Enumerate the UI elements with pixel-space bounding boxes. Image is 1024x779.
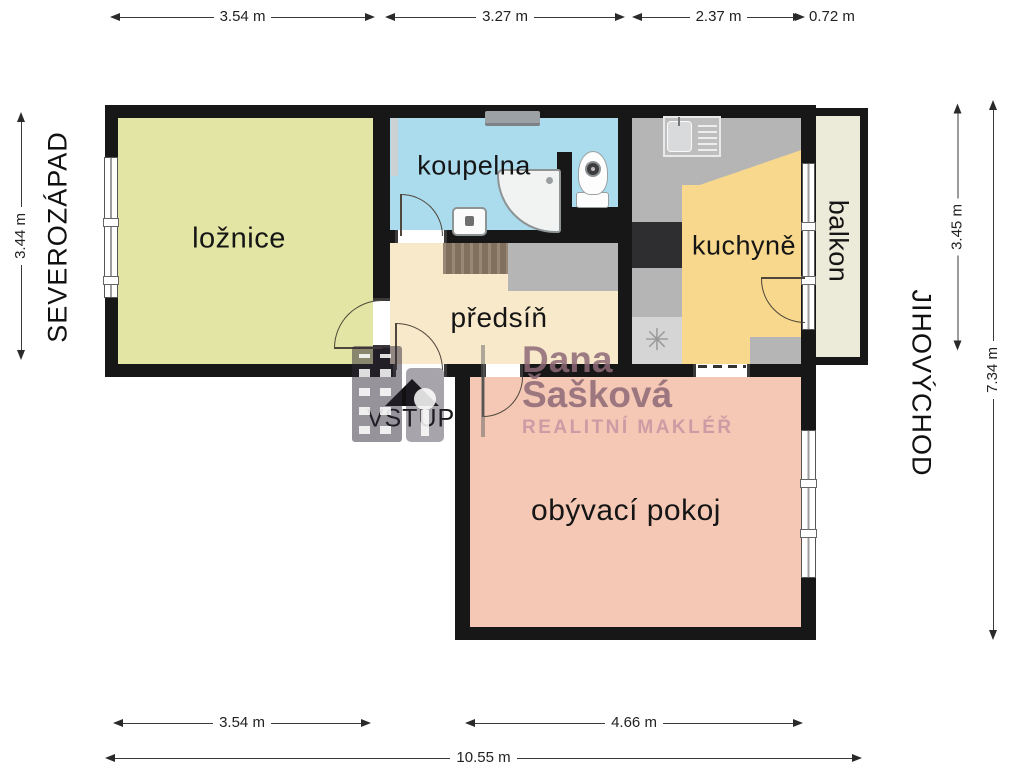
arrow-left-icon bbox=[113, 719, 123, 727]
label-bathroom: koupelna bbox=[417, 151, 531, 182]
arrow-right-icon bbox=[793, 719, 803, 727]
window-balcony-divider bbox=[801, 222, 816, 231]
kitchen-washer: ✳ bbox=[632, 317, 682, 364]
dim-left-bedroom: 3.44 m bbox=[13, 112, 29, 360]
dim-label: 3.54 m bbox=[214, 9, 272, 25]
label-balcony: balkon bbox=[823, 200, 854, 283]
arrow-left-icon bbox=[110, 13, 120, 21]
kitchen-appliance bbox=[632, 222, 682, 268]
watermark-logo-keyhole bbox=[406, 368, 444, 442]
arrow-left-icon bbox=[385, 13, 395, 21]
door-leaf-bathroom bbox=[400, 194, 402, 236]
sink-tap bbox=[465, 216, 474, 226]
dim-label: 2.37 m bbox=[690, 9, 748, 25]
wall-wc-bottom bbox=[572, 207, 618, 243]
arrow-left-icon bbox=[17, 350, 25, 360]
wall-balcony-bottom bbox=[816, 357, 868, 365]
label-hallway: předsíň bbox=[451, 302, 548, 334]
dim-top-balcony: 0.72 m bbox=[793, 9, 870, 25]
arrow-right-icon bbox=[852, 754, 862, 762]
dim-label: 0.72 m bbox=[803, 9, 861, 25]
fan-icon: ✳ bbox=[644, 326, 669, 356]
arrow-left-icon bbox=[989, 630, 997, 640]
floor-hallway-tiles bbox=[508, 243, 618, 291]
arrow-right-icon bbox=[361, 719, 371, 727]
label-kitchen: kuchyně bbox=[692, 231, 796, 262]
wall-livingroom-left bbox=[455, 377, 470, 640]
dim-label: 3.27 m bbox=[476, 9, 534, 25]
dim-bottom-bedroom: 3.54 m bbox=[113, 715, 371, 731]
bathtub-faucet bbox=[546, 177, 553, 184]
floor-plan: ✳ bbox=[0, 0, 1024, 779]
watermark-name-line2: Šašková bbox=[522, 374, 672, 416]
label-bedroom: ložnice bbox=[192, 223, 286, 256]
kitchen-counter-left bbox=[632, 185, 682, 222]
watermark-keyhole-stem bbox=[421, 410, 429, 436]
dim-top-kitchen: 2.37 m bbox=[632, 9, 805, 25]
watermark-logo-building bbox=[352, 346, 402, 442]
arrow-right-icon bbox=[365, 13, 375, 21]
dim-label: 3.54 m bbox=[213, 715, 271, 731]
window-livingroom-divider2 bbox=[800, 529, 817, 538]
window-bedroom-divider bbox=[103, 218, 119, 227]
watermark-logo-windows2 bbox=[380, 354, 391, 434]
bathroom-shelf bbox=[485, 111, 540, 126]
dim-label: 10.55 m bbox=[450, 750, 516, 766]
arrow-left-icon bbox=[954, 341, 962, 351]
arrow-right-icon bbox=[793, 13, 803, 21]
arrow-right-icon bbox=[954, 103, 962, 113]
dim-right-total: 7.34 m bbox=[985, 100, 1001, 640]
kitchen-sink-tap bbox=[678, 117, 680, 126]
dim-label: 3.45 m bbox=[950, 198, 966, 256]
wall-balcony-right bbox=[860, 108, 868, 365]
watermark-subtitle: REALITNÍ MAKLÉŘ bbox=[522, 417, 734, 439]
compass-southeast: JIHOVÝCHOD bbox=[906, 289, 937, 476]
kitchen-counter-left2 bbox=[632, 268, 682, 317]
dim-label: 3.44 m bbox=[13, 207, 29, 265]
arrow-left-icon bbox=[105, 754, 115, 762]
arrow-left-icon bbox=[632, 13, 642, 21]
kitchen-drainer bbox=[698, 123, 717, 151]
dim-top-bedroom: 3.54 m bbox=[110, 9, 375, 25]
door-gap-livingroom bbox=[483, 364, 523, 377]
pass-through-dashes bbox=[698, 365, 746, 368]
dim-label: 7.34 m bbox=[985, 341, 1001, 399]
dim-bottom-livingroom: 4.66 m bbox=[465, 715, 803, 731]
door-leaf-balcony bbox=[761, 277, 805, 279]
watermark-logo-windows bbox=[359, 354, 370, 434]
wall-kitchen-divider bbox=[618, 105, 632, 364]
arrow-right-icon bbox=[989, 100, 997, 110]
window-bedroom-divider2 bbox=[103, 276, 119, 285]
arrow-left-icon bbox=[465, 719, 475, 727]
watermark-keyhole-circle bbox=[414, 388, 436, 410]
dim-bottom-total: 10.55 m bbox=[105, 750, 862, 766]
bathroom-radiator bbox=[391, 118, 398, 176]
compass-northwest: SEVEROZÁPAD bbox=[43, 131, 74, 343]
label-livingroom: obývací pokoj bbox=[531, 494, 721, 528]
arrow-right-icon bbox=[17, 112, 25, 122]
window-livingroom-divider bbox=[800, 479, 817, 488]
dim-right-upper: 3.45 m bbox=[950, 104, 966, 351]
wall-livingroom-bottom bbox=[455, 627, 816, 640]
watermark-divider bbox=[481, 345, 485, 437]
arrow-right-icon bbox=[615, 13, 625, 21]
kitchen-floor-gray bbox=[750, 337, 801, 364]
dim-label: 4.66 m bbox=[605, 715, 663, 731]
toilet-drain bbox=[591, 167, 595, 171]
dim-top-bathroom: 3.27 m bbox=[385, 9, 625, 25]
hallway-rug bbox=[443, 243, 508, 274]
window-livingroom bbox=[801, 430, 816, 578]
